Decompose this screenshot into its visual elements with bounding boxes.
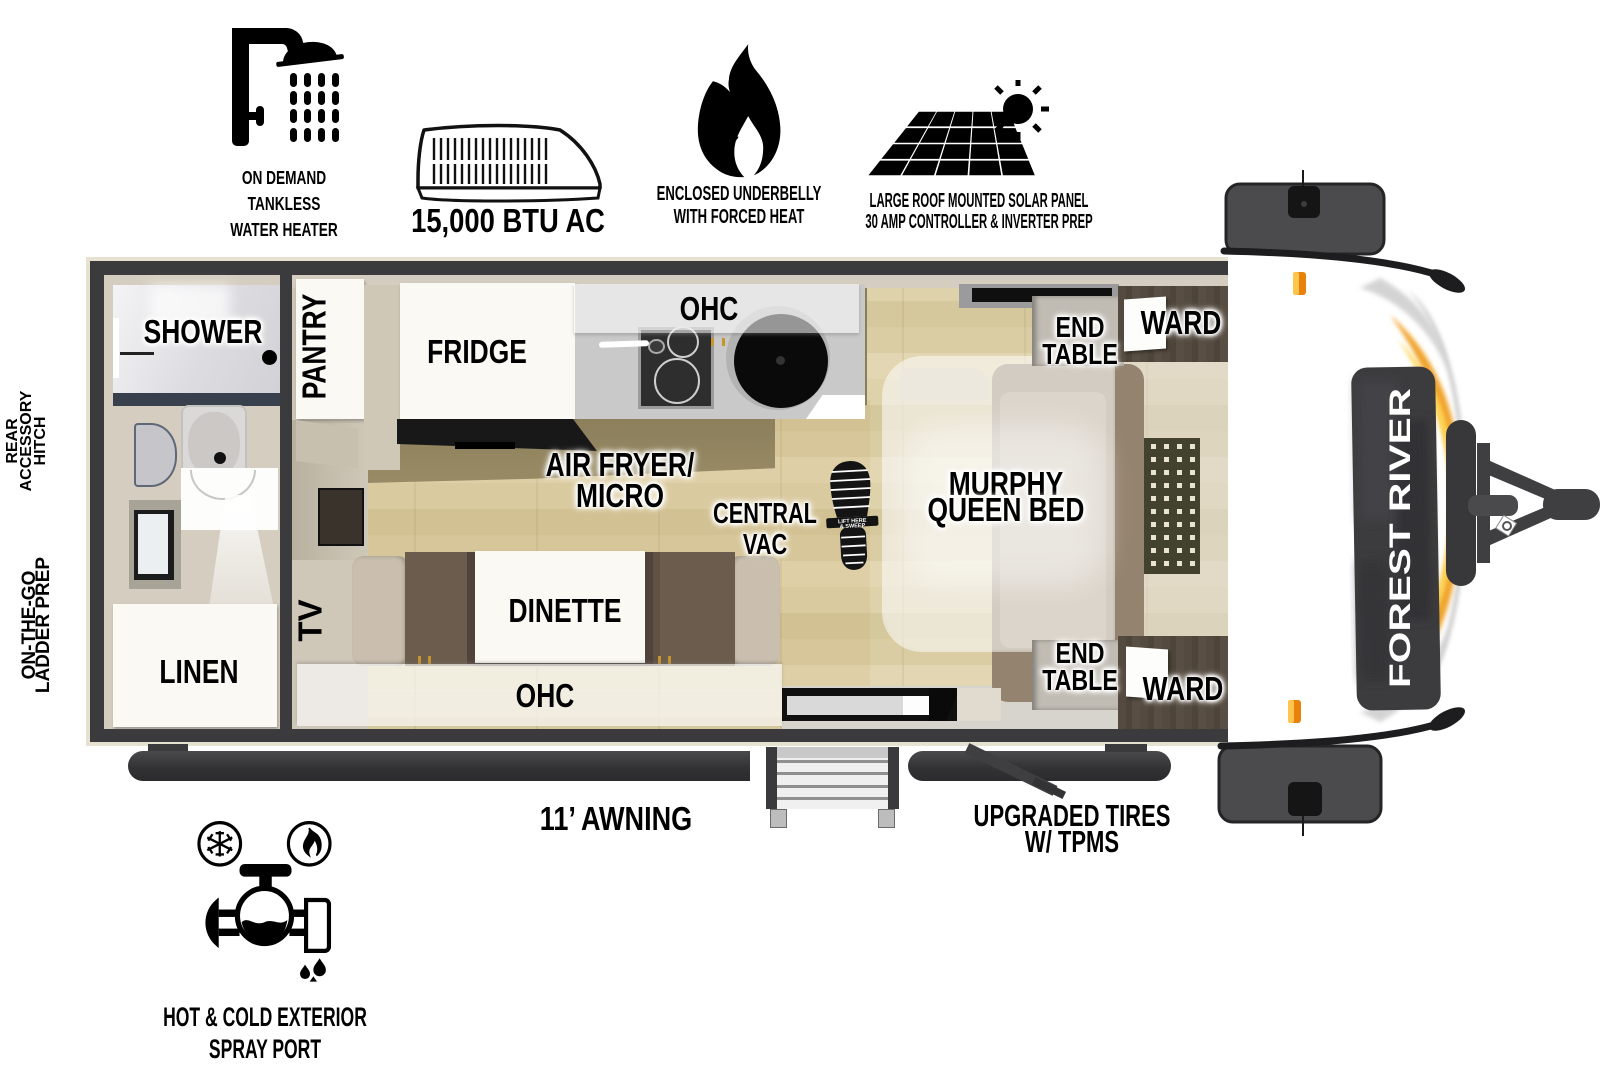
svg-text:FOREST RIVER: FOREST RIVER xyxy=(1384,388,1417,688)
